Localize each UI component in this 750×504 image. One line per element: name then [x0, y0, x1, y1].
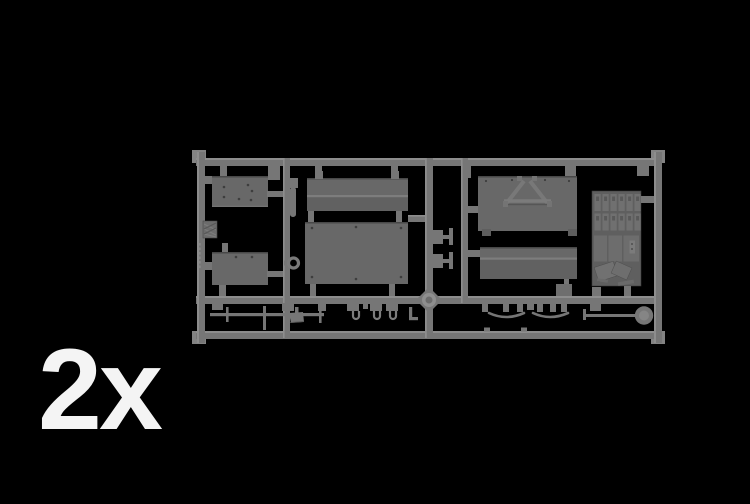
middle-section [305, 171, 425, 296]
connector-stub [315, 171, 323, 179]
pin-part [263, 306, 266, 330]
right-rail-highlight [654, 152, 656, 343]
connector-stub [204, 262, 213, 270]
connector-stub [468, 250, 480, 257]
bracket-part-1 [433, 228, 453, 245]
connector-stub [468, 206, 478, 213]
corner-tab [482, 229, 491, 236]
bracket-part-2 [433, 252, 453, 269]
ridged-side-panel-right [480, 247, 577, 279]
connector-stub [624, 286, 631, 296]
connector-stub [222, 243, 228, 252]
ridged-side-panel-centre [307, 178, 408, 211]
divider-rail-2-highlight [425, 158, 427, 338]
floor-panel-large [305, 222, 408, 284]
quantity-label: 2x [38, 333, 160, 448]
riveted-plate-upper [212, 176, 268, 207]
connector-stub [219, 285, 226, 296]
connector-stub [308, 211, 314, 222]
small-block-part [289, 178, 298, 188]
pin-part [319, 306, 322, 323]
junction-boss [416, 287, 442, 313]
hanger-tab [282, 303, 294, 311]
connector-stub [267, 191, 283, 197]
bow-arc [489, 313, 524, 317]
hanger-tabs [482, 303, 567, 312]
pin-part [226, 307, 229, 322]
connector-stub [592, 287, 601, 296]
cylindrical-pin [290, 187, 296, 217]
bow-arc [533, 313, 568, 317]
l-bracket [409, 307, 418, 320]
bottom-parts-left [210, 302, 418, 330]
connector-stub [391, 171, 399, 179]
connector-stub [204, 176, 213, 184]
u-clips [347, 302, 398, 319]
hanger-tab [212, 303, 223, 310]
connector-stub [310, 284, 316, 296]
right-section [468, 176, 654, 296]
small-block-part [556, 284, 572, 296]
connector-stub [389, 284, 395, 296]
connector-stub [267, 271, 283, 277]
stowage-boxes [594, 236, 639, 262]
pioneer-tool-rod [210, 306, 324, 330]
tread-plate [203, 221, 217, 238]
connector-stub [641, 196, 654, 203]
product-image: 2x [0, 0, 750, 504]
stowage-accessory-panel [592, 191, 641, 286]
connector-stub [484, 328, 490, 332]
deck-panel-aframe [478, 176, 577, 236]
bottom-parts-right [482, 302, 653, 332]
corner-tab [568, 229, 577, 236]
connector-stub [396, 211, 402, 222]
connector-rail-highlight [408, 215, 425, 217]
hanger-tab [590, 302, 601, 311]
divider-rail-3-highlight [461, 158, 463, 303]
connector-stub [521, 328, 527, 332]
centre-brackets [433, 228, 453, 269]
riveted-plate-lower [212, 252, 268, 285]
